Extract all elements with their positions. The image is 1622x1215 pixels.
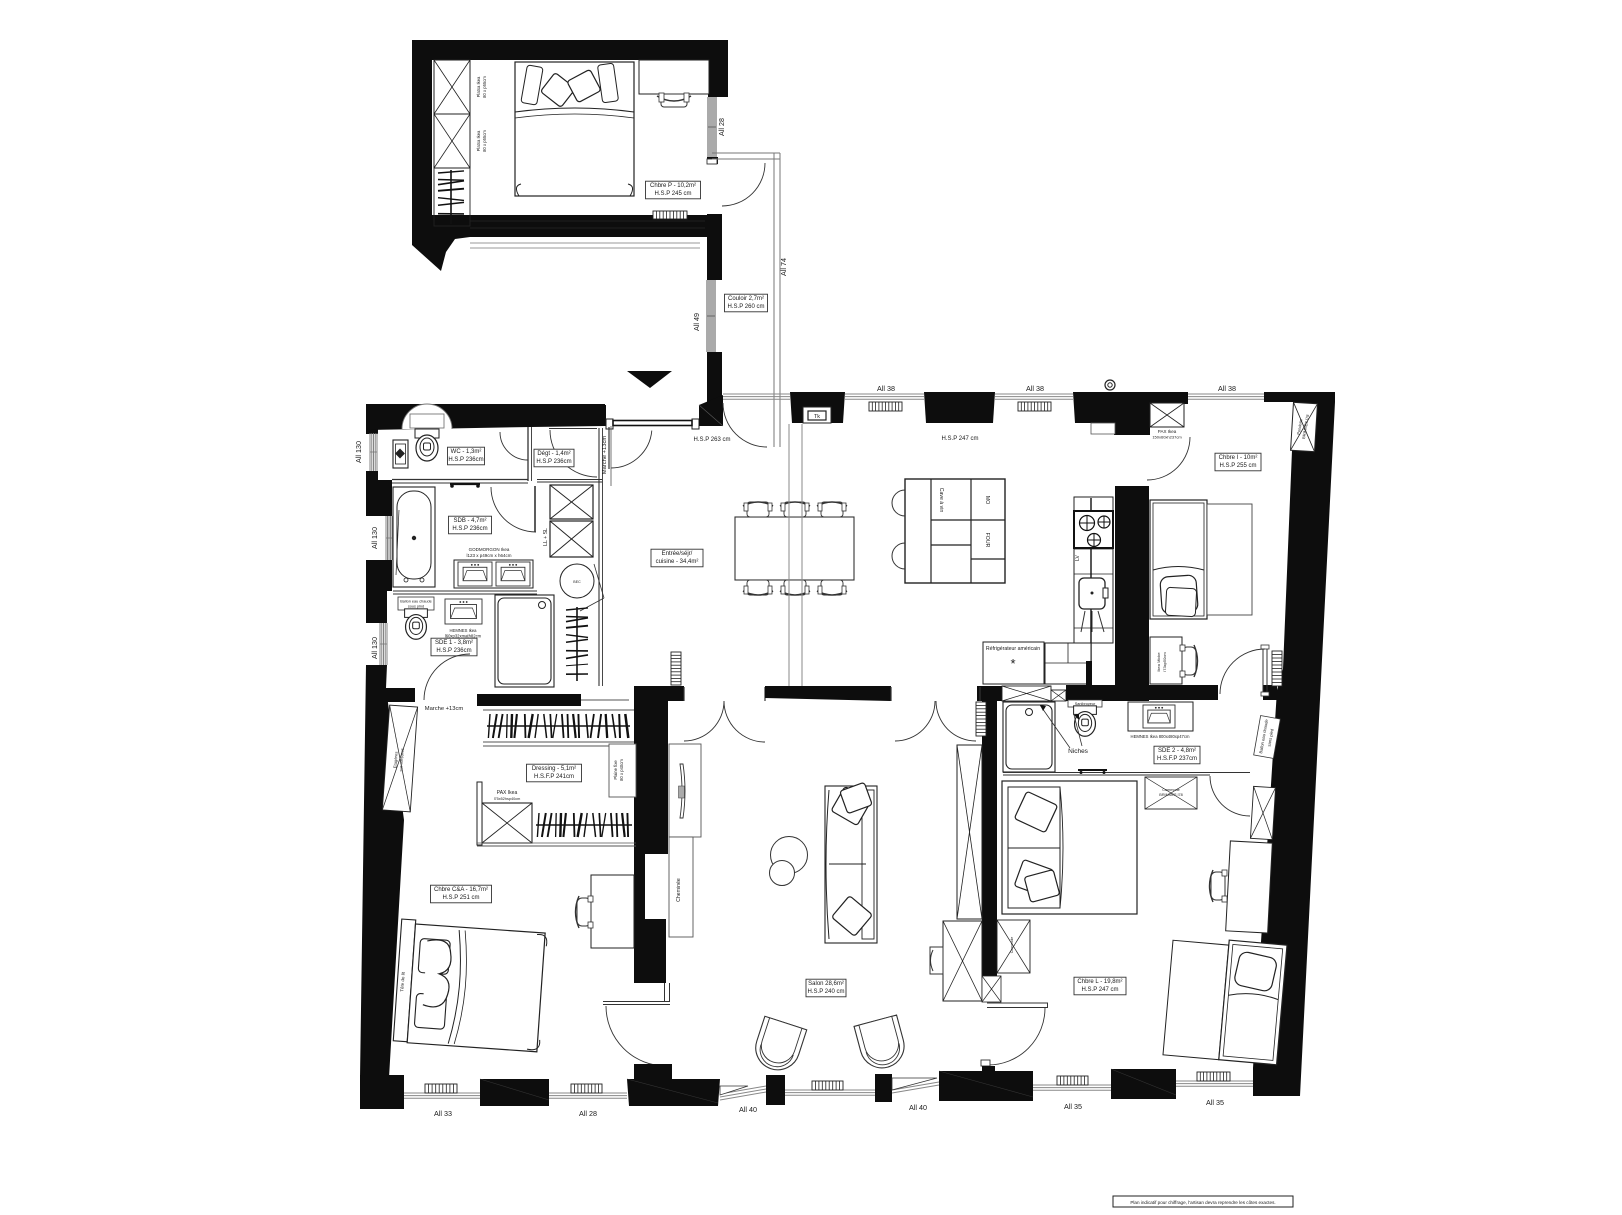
svg-text:Commode: Commode xyxy=(1162,788,1180,792)
svg-text:H.S.P 247 cm: H.S.P 247 cm xyxy=(942,436,979,442)
svg-text:sous plnd: sous plnd xyxy=(408,605,424,609)
svg-text:All 38: All 38 xyxy=(877,384,895,393)
svg-text:HEMNES Ikea: HEMNES Ikea xyxy=(450,628,478,633)
svg-text:Marche +13cm: Marche +13cm xyxy=(602,436,608,475)
svg-text:All 35: All 35 xyxy=(1064,1102,1082,1111)
svg-text:Chbre P - 10,2m²: Chbre P - 10,2m² xyxy=(650,183,696,189)
svg-text:All 130: All 130 xyxy=(370,527,379,549)
svg-text:All 40: All 40 xyxy=(909,1103,927,1112)
svg-text:All 28: All 28 xyxy=(717,118,726,136)
svg-text:SDE 1 - 3,8m²: SDE 1 - 3,8m² xyxy=(435,640,473,646)
svg-text:H.S.P 236cm: H.S.P 236cm xyxy=(536,459,571,465)
svg-text:H.S.P 240 cm: H.S.P 240 cm xyxy=(808,989,845,995)
svg-text:80 x p40cm: 80 x p40cm xyxy=(619,759,624,781)
svg-text:H.S.P 247 cm: H.S.P 247 cm xyxy=(1082,987,1119,993)
svg-text:Couloir 2,7m²: Couloir 2,7m² xyxy=(728,296,764,302)
svg-text:*: * xyxy=(1010,656,1015,671)
svg-text:All 33: All 33 xyxy=(434,1109,452,1118)
svg-text:PAX Ikea: PAX Ikea xyxy=(1158,429,1177,434)
svg-text:H.S.P 245 cm: H.S.P 245 cm xyxy=(655,191,692,197)
svg-text:H.S.P 236cm: H.S.P 236cm xyxy=(448,457,483,463)
svg-text:Cheminée: Cheminée xyxy=(676,878,682,902)
svg-text:Salon 28,6m²: Salon 28,6m² xyxy=(808,981,844,987)
svg-text:Dégt - 1,4m²: Dégt - 1,4m² xyxy=(537,451,570,457)
svg-text:Chbre L - 19,8m²: Chbre L - 19,8m² xyxy=(1077,979,1122,985)
svg-text:SDE 2 - 4,8m²: SDE 2 - 4,8m² xyxy=(1158,748,1196,754)
svg-text:l75x52hsp40cm: l75x52hsp40cm xyxy=(494,797,521,801)
svg-text:H.S.P 263 cm: H.S.P 263 cm xyxy=(694,437,731,443)
svg-text:150x60xh237cm: 150x60xh237cm xyxy=(1152,435,1182,440)
svg-text:LV: LV xyxy=(1075,554,1081,560)
svg-text:BRIMNES l78: BRIMNES l78 xyxy=(1159,793,1182,797)
svg-text:80 x p55cm: 80 x p55cm xyxy=(482,76,487,98)
svg-text:MO: MO xyxy=(984,496,990,504)
svg-text:Cave à vin: Cave à vin xyxy=(938,488,944,513)
svg-text:All 130: All 130 xyxy=(354,441,363,463)
svg-text:FOUR: FOUR xyxy=(984,533,990,548)
svg-text:All 38: All 38 xyxy=(1218,384,1236,393)
svg-text:H.S.F.P 241cm: H.S.F.P 241cm xyxy=(534,774,574,780)
svg-text:All 40: All 40 xyxy=(739,1105,757,1114)
svg-text:Plaine fixe: Plaine fixe xyxy=(613,760,618,780)
svg-text:SDB - 4,7m²: SDB - 4,7m² xyxy=(453,518,486,524)
svg-text:l123 x p49cm x h64cm: l123 x p49cm x h64cm xyxy=(466,553,511,558)
svg-text:LL + SL: LL + SL xyxy=(543,528,549,546)
svg-text:PAX Ikea: PAX Ikea xyxy=(497,790,518,796)
svg-text:BEC: BEC xyxy=(573,580,581,584)
svg-text:Marche +13cm: Marche +13cm xyxy=(425,706,464,712)
svg-text:Ballon eau chaude: Ballon eau chaude xyxy=(400,600,431,604)
svg-text:GODMORGON Ikea: GODMORGON Ikea xyxy=(469,547,510,552)
svg-text:Commode: Commode xyxy=(1010,937,1014,954)
svg-text:H.S.F.P 237cm: H.S.F.P 237cm xyxy=(1157,756,1197,762)
svg-text:Niches: Niches xyxy=(1068,748,1089,755)
svg-text:H.S.P 255 cm: H.S.P 255 cm xyxy=(1220,463,1257,469)
svg-text:l73xp50cm: l73xp50cm xyxy=(1162,652,1167,672)
svg-text:HEMNES Ikea 800x480xp47cm: HEMNES Ikea 800x480xp47cm xyxy=(1131,734,1190,739)
svg-text:Platsa Ikea: Platsa Ikea xyxy=(476,130,481,151)
svg-text:All 35: All 35 xyxy=(1206,1098,1224,1107)
svg-text:Dressing - 5,1m²: Dressing - 5,1m² xyxy=(532,766,576,772)
svg-text:Ikea Micke: Ikea Micke xyxy=(1156,652,1161,672)
svg-text:WC - 1,3m²: WC - 1,3m² xyxy=(451,449,482,455)
svg-text:H.S.P 251 cm: H.S.P 251 cm xyxy=(443,895,480,901)
svg-text:All 38: All 38 xyxy=(1026,384,1044,393)
svg-text:H.S.P 236cm: H.S.P 236cm xyxy=(436,648,471,654)
svg-text:cuisine - 34,4m²: cuisine - 34,4m² xyxy=(656,559,699,565)
svg-text:All 49: All 49 xyxy=(692,313,701,331)
svg-text:All 130: All 130 xyxy=(370,637,379,659)
svg-text:Chbre C&A - 16,7m²: Chbre C&A - 16,7m² xyxy=(434,887,488,893)
svg-text:Platsa Ikea: Platsa Ikea xyxy=(476,76,481,97)
svg-text:80 x p55cm: 80 x p55cm xyxy=(482,130,487,152)
svg-text:H.S.P 236cm: H.S.P 236cm xyxy=(452,526,487,532)
svg-text:H.S.P 260 cm: H.S.P 260 cm xyxy=(728,304,765,310)
svg-text:All 74: All 74 xyxy=(779,258,788,276)
svg-text:Réfrigérateur américain: Réfrigérateur américain xyxy=(986,646,1040,652)
svg-text:Plan indicatif pour chiffrage,: Plan indicatif pour chiffrage, l'artisan… xyxy=(1130,1200,1275,1205)
svg-text:All 28: All 28 xyxy=(579,1109,597,1118)
svg-text:Tk: Tk xyxy=(814,414,820,420)
svg-text:Chbre I - 10m²: Chbre I - 10m² xyxy=(1219,455,1258,461)
svg-text:Entrée/séjr/: Entrée/séjr/ xyxy=(662,551,693,557)
